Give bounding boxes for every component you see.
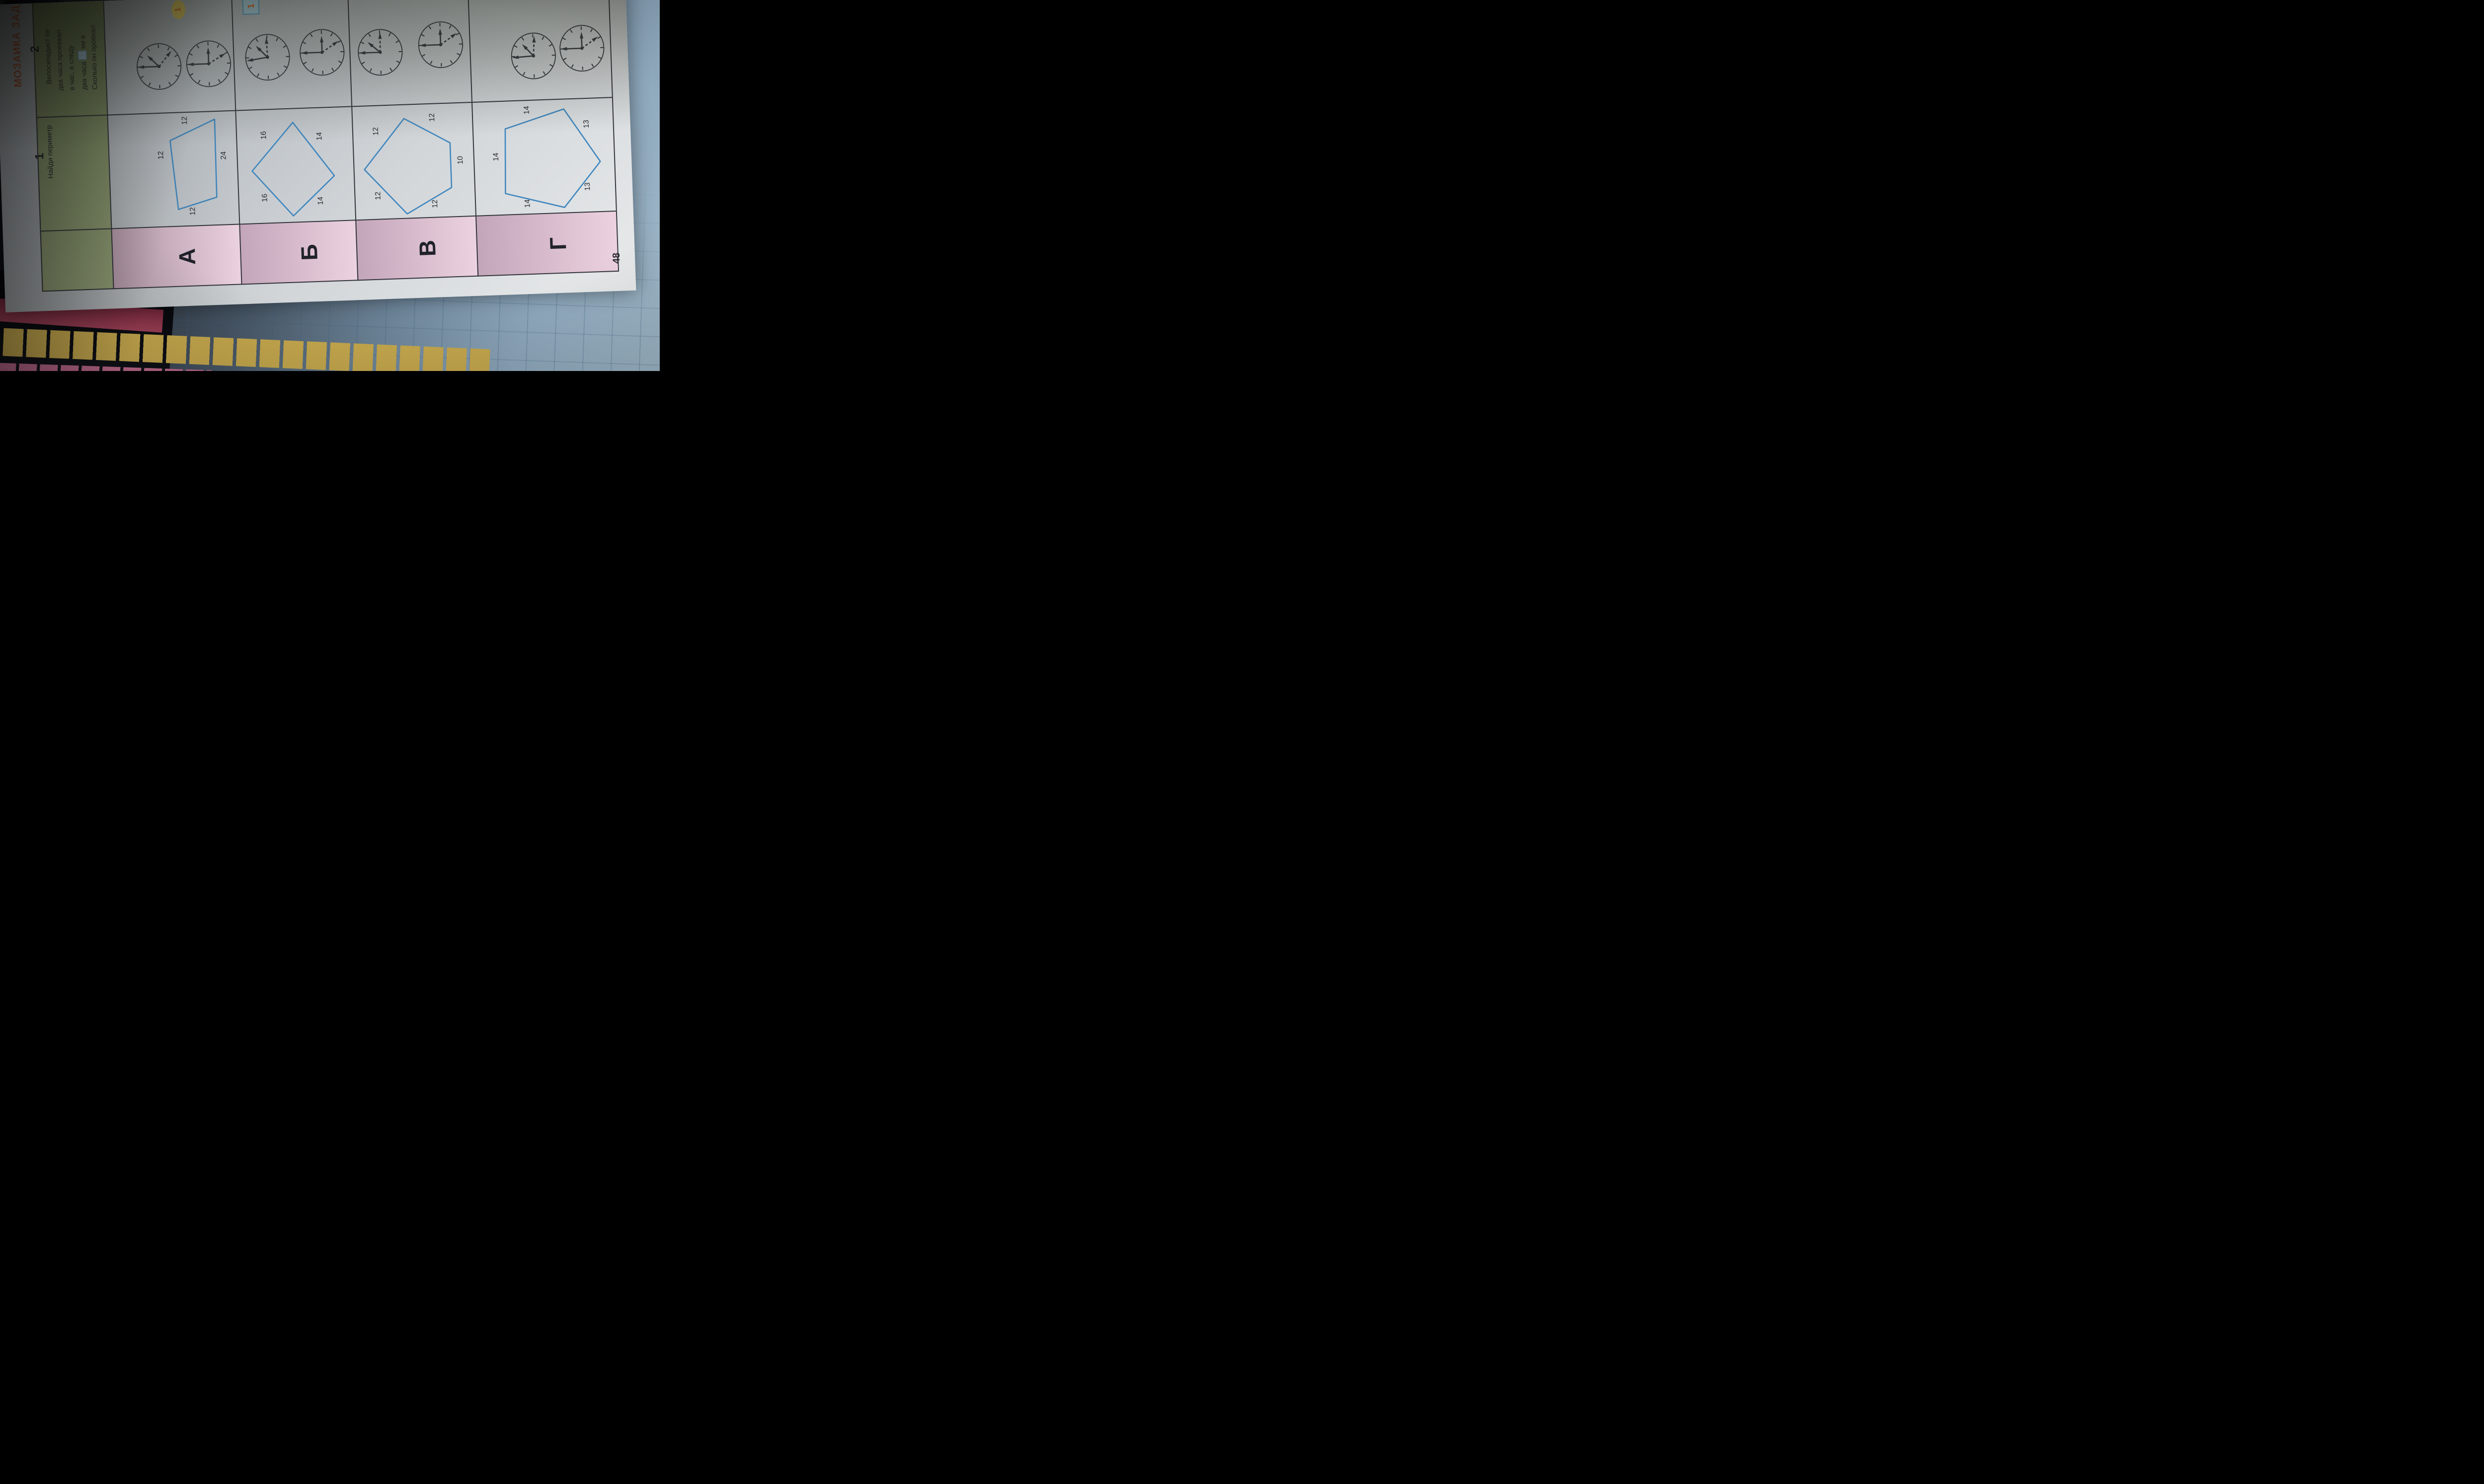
task-2-number: 2 bbox=[28, 46, 42, 53]
side-length-label: 12 bbox=[180, 116, 189, 125]
answer-box bbox=[78, 51, 87, 60]
row-label-cell-В: В bbox=[355, 217, 477, 281]
side-length-label: 16 bbox=[260, 194, 269, 202]
task-1-number: 1 bbox=[33, 153, 47, 160]
polygon-В-pentagon: 1212121012 bbox=[351, 102, 475, 220]
photo-canvas: МОЗАИКА ЗАДАНИЙ АБВГ 1 Найди периметр 2 … bbox=[0, 0, 660, 371]
polygon-Б-kite: 16161414 bbox=[235, 106, 355, 223]
side-length-label: 14 bbox=[523, 199, 532, 208]
clock-Б-2 bbox=[300, 29, 345, 76]
polygon-А-trapezoid: 12121224 bbox=[107, 110, 239, 228]
clock-В-1 bbox=[358, 29, 403, 76]
clock-А-2 bbox=[186, 40, 231, 87]
side-length-label: 13 bbox=[583, 182, 592, 191]
side-length-label: 12 bbox=[188, 207, 197, 216]
clock-Б-1 bbox=[245, 34, 290, 81]
side-length-label: 14 bbox=[492, 152, 501, 161]
side-length-label: 12 bbox=[431, 200, 440, 208]
row-label-Б: Б bbox=[250, 221, 368, 285]
side-length-label: 12 bbox=[374, 192, 383, 200]
row-label-Г: Г bbox=[486, 211, 629, 276]
textbook-page: МОЗАИКА ЗАДАНИЙ АБВГ 1 Найди периметр 2 … bbox=[0, 0, 636, 312]
clock-Г-2 bbox=[559, 25, 605, 72]
page-title: МОЗАИКА ЗАДАНИЙ bbox=[9, 0, 25, 87]
clocks-А bbox=[103, 0, 241, 115]
row-label-В: В bbox=[366, 216, 488, 280]
clock-В-2 bbox=[418, 21, 463, 69]
clocks-В bbox=[347, 0, 477, 106]
row-label-cell-Г: Г bbox=[475, 212, 618, 277]
polygon-Г-pentagon: 1414131314 bbox=[471, 97, 616, 216]
clock-Г-1 bbox=[511, 32, 556, 79]
page-number: 48 bbox=[611, 252, 623, 264]
side-length-label: 12 bbox=[428, 113, 437, 122]
side-length-label: 14 bbox=[315, 132, 324, 141]
side-length-label: 16 bbox=[259, 131, 268, 140]
clocks-Б bbox=[231, 0, 357, 110]
row-label-cell-Б: Б bbox=[239, 221, 357, 285]
side-length-label: 12 bbox=[372, 127, 381, 136]
side-length-label: 14 bbox=[316, 197, 325, 205]
clock-А-1 bbox=[136, 43, 181, 90]
row-label-cell-А: А bbox=[111, 224, 241, 289]
row-label-А: А bbox=[122, 224, 252, 289]
side-length-label: 24 bbox=[219, 151, 228, 159]
side-length-label: 13 bbox=[582, 120, 591, 128]
side-length-label: 10 bbox=[456, 156, 465, 164]
clocks-Г bbox=[467, 0, 618, 102]
side-length-label: 14 bbox=[522, 106, 531, 114]
side-length-label: 12 bbox=[156, 151, 165, 159]
